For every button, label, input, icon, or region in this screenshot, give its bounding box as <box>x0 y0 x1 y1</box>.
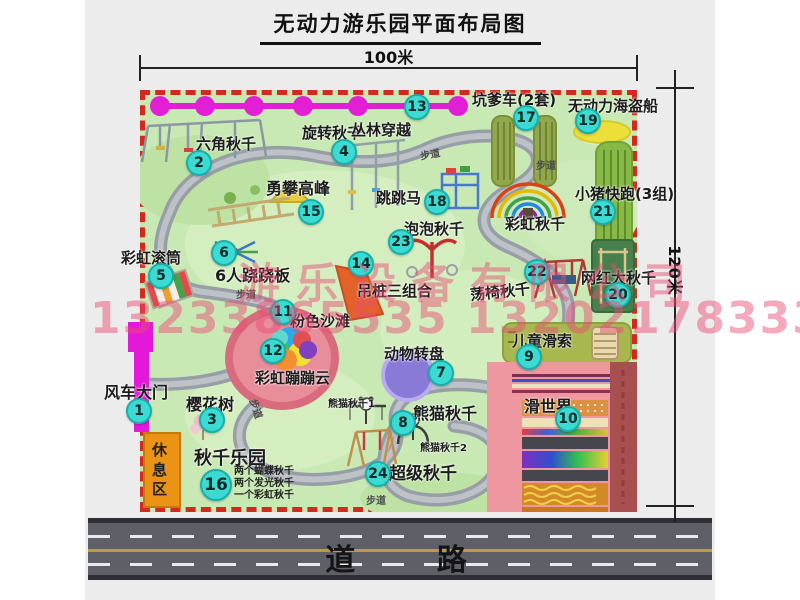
watermark-phone: 13233865535 13202178333 <box>90 293 800 344</box>
road: 道 路 <box>88 518 712 580</box>
attraction-badge-8: 8 <box>390 410 416 436</box>
swing-park-detail-1: 两个蝴蝶秋千 <box>234 466 294 478</box>
attraction-badge-5: 5 <box>148 263 174 289</box>
attraction-badge-10: 10 <box>555 406 581 432</box>
attraction-label-12: 彩虹蹦蹦云 <box>255 367 330 388</box>
swing-park-detail-3: 一个彩虹秋千 <box>234 490 294 502</box>
swing-park-detail-2: 两个发光秋千 <box>234 478 294 490</box>
attraction-label-18: 跳跳马 <box>376 187 421 208</box>
attraction-badge-6: 6 <box>211 240 237 266</box>
attraction-label-24: 超级秋千 <box>389 459 457 484</box>
attraction-badge-1: 1 <box>126 398 152 424</box>
road-label: 道 路 <box>88 535 712 579</box>
attraction-badge-9: 9 <box>516 344 542 370</box>
attraction-badge-3: 3 <box>199 407 225 433</box>
attraction-badge-18: 18 <box>424 189 450 215</box>
slide-world-icon <box>487 362 637 512</box>
swing-park-details: 两个蝴蝶秋千 两个发光秋千 一个彩虹秋千 <box>234 466 294 502</box>
attraction-badge-17: 17 <box>513 105 539 131</box>
page-title: 无动力游乐园平面布局图 <box>85 8 715 45</box>
attraction-badge-13: 13 <box>404 94 430 120</box>
trail-label-5: 步道 <box>366 492 386 507</box>
attraction-label-17: 坑爹车(2套) <box>472 89 556 110</box>
panda-swing-2-label: 熊猫秋千2 <box>420 439 467 454</box>
dim-width-tick-right <box>636 55 638 81</box>
screenshot-stage: 无动力游乐园平面布局图 100米 120米 <box>0 0 800 600</box>
attraction-badge-19: 19 <box>575 108 601 134</box>
attraction-badge-16: 16 <box>200 469 232 501</box>
attraction-badge-24: 24 <box>365 461 391 487</box>
attraction-label-5: 彩虹滚筒 <box>121 247 181 268</box>
attraction-badge-7: 7 <box>428 360 454 386</box>
trail-label-2: 步道 <box>536 157 556 172</box>
rest-area-box: 休息区 <box>143 432 181 508</box>
rainbow-swing-label: 彩虹秋千 <box>505 213 565 234</box>
page-title-text: 无动力游乐园平面布局图 <box>260 8 541 45</box>
attraction-label-8: 熊猫秋千 <box>413 400 477 424</box>
dim-height-tick-bottom <box>646 505 694 507</box>
dim-height-tick-top <box>656 87 694 89</box>
attraction-label-15: 勇攀高峰 <box>266 175 330 199</box>
attraction-label-23: 泡泡秋千 <box>404 218 464 239</box>
attraction-badge-4: 4 <box>331 139 357 165</box>
attraction-label-21: 小猪快跑(3组) <box>575 183 674 204</box>
dim-width-line <box>139 67 638 69</box>
dim-width-tick-left <box>139 55 141 81</box>
attraction-label-13: 丛林穿越 <box>351 119 411 140</box>
attraction-badge-2: 2 <box>186 150 212 176</box>
attraction-badge-15: 15 <box>298 199 324 225</box>
attraction-badge-21: 21 <box>590 199 616 225</box>
dim-width-label: 100米 <box>140 44 637 68</box>
panda-swing-1-label: 熊猫秋千1 <box>328 395 375 410</box>
